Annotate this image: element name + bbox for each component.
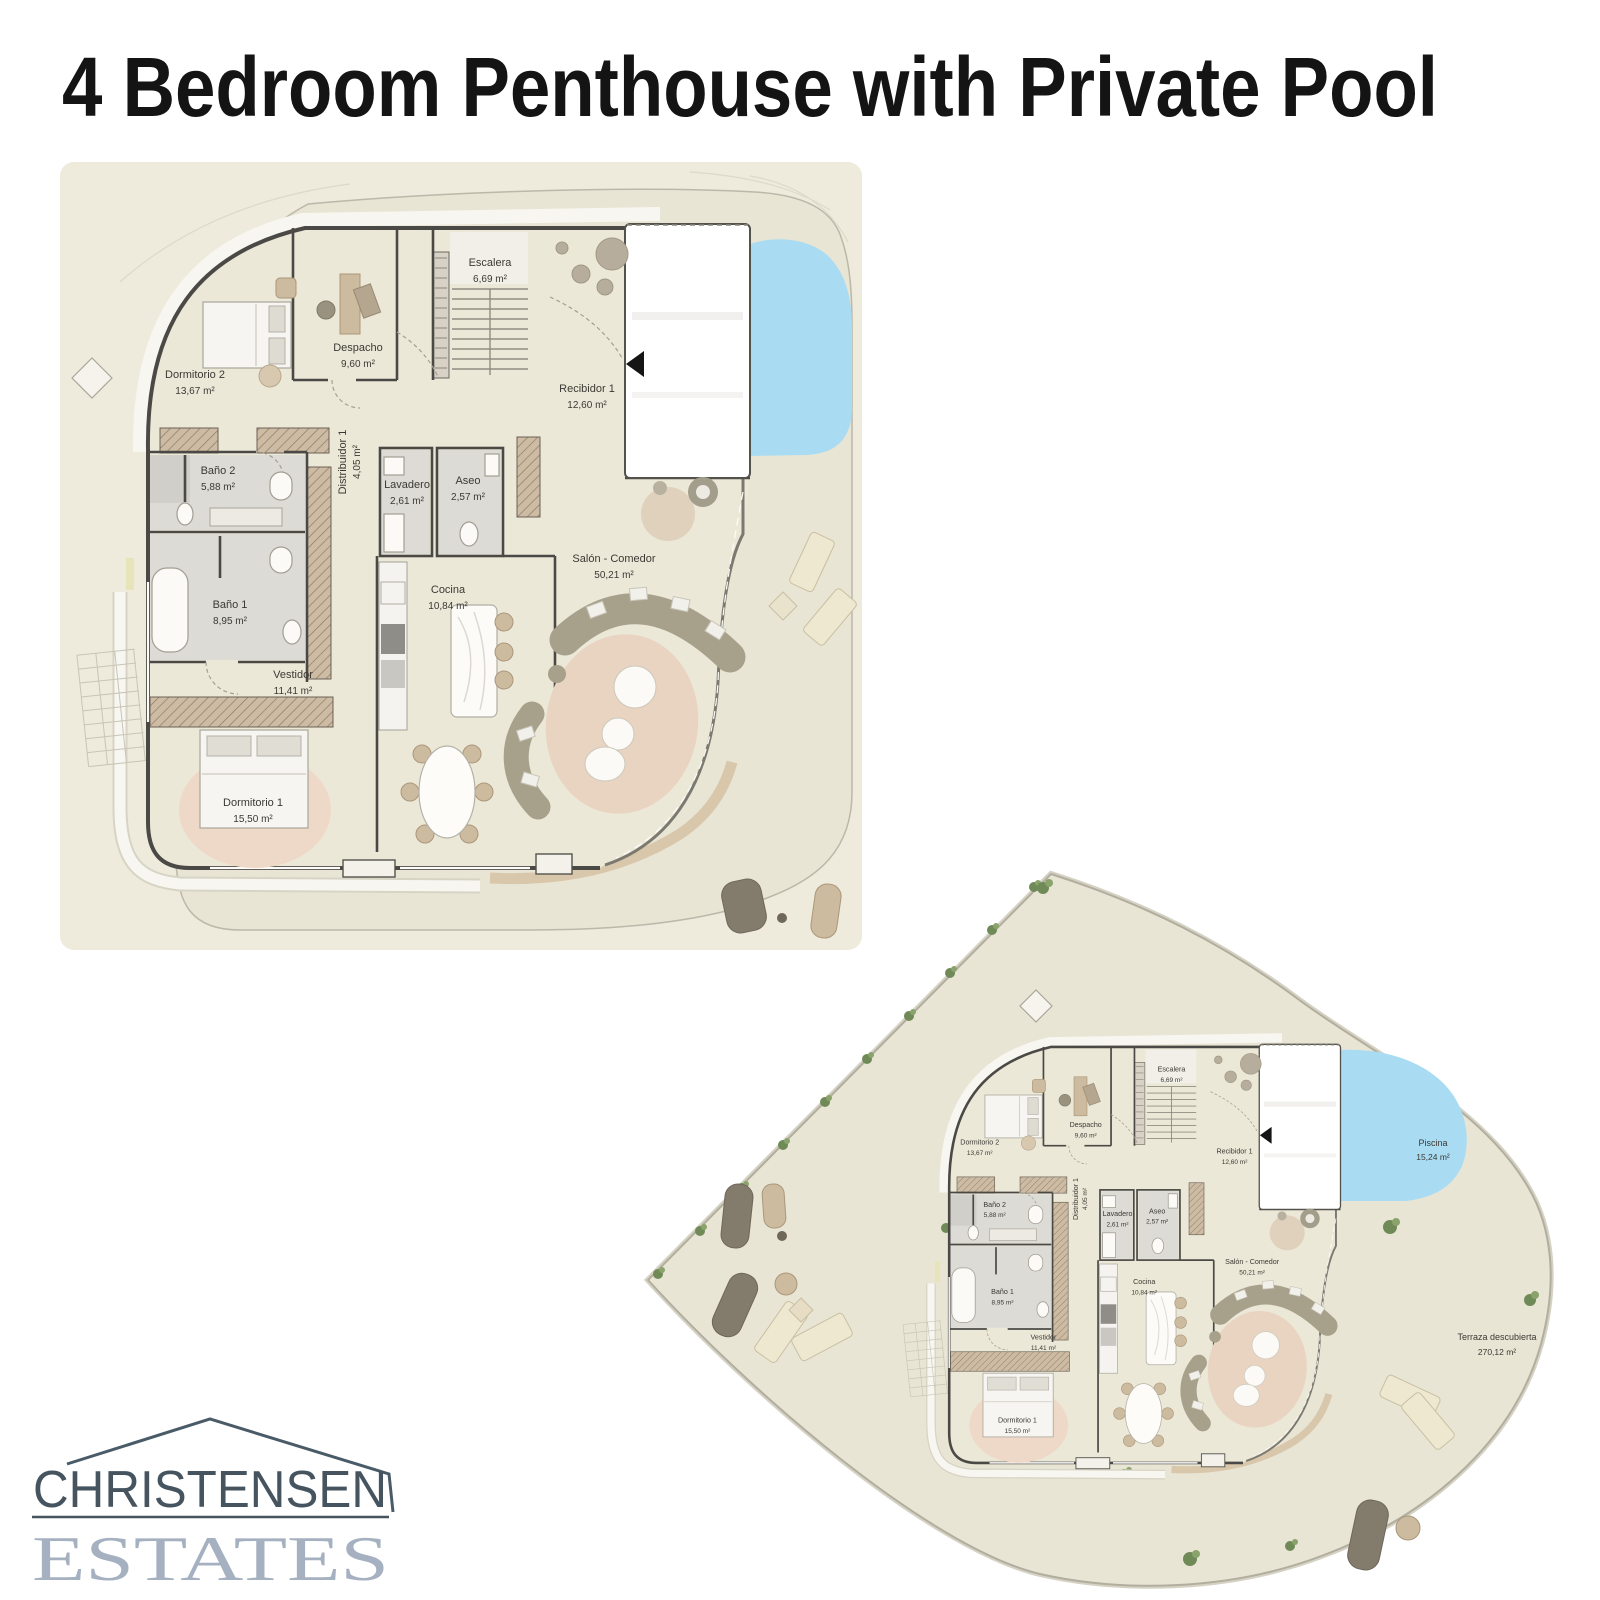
label-recibidor-name: Recibidor 1 [559,383,615,395]
label-salon-area: 50,21 m² [594,570,634,581]
label-despacho-name: Despacho [333,342,383,354]
label-bano1-area: 8,95 m² [213,616,248,627]
label-dormitorio2-name: Dormitorio 2 [165,369,225,381]
plan-lower: Piscina 15,24 m² Terraza descubierta 270… [648,874,1551,1586]
pool-lower [1340,1050,1467,1201]
label-lavadero-area: 2,61 m² [390,496,425,507]
label-lavadero-name: Lavadero [384,479,430,491]
label-escalera-name: Escalera [469,257,513,269]
void-shade-2 [632,392,743,398]
plan-upper: Dormitorio 2 13,67 m² Despacho 9,60 m² E… [60,162,862,950]
label-recibidor-area: 12,60 m² [567,400,607,411]
label-aseo-name: Aseo [455,475,480,487]
apartment-unit-lower [903,1038,1340,1475]
label-despacho-area: 9,60 m² [341,359,376,370]
label-vestidor-name: Vestidor [273,669,313,681]
label-piscina-area: 15,24 m² [1416,1152,1450,1162]
label-bano1-name: Baño 1 [213,599,248,611]
void-recibidor [625,224,750,478]
logo: CHRISTENSEN ESTATES [32,1419,393,1594]
label-dormitorio1-area: 15,50 m² [233,814,273,825]
door-threshold [343,860,395,877]
label-distribuidor-name: Distribuidor 1 [337,430,349,495]
floorplan-flyer: 4 Bedroom Penthouse with Private Pool [0,0,1600,1600]
label-bano2-name: Baño 2 [201,465,236,477]
label-cocina-name: Cocina [431,584,466,596]
logo-wordmark: CHRISTENSEN [33,1461,387,1519]
label-escalera-area: 6,69 m² [473,274,508,285]
label-aseo-area: 2,57 m² [451,492,486,503]
door-threshold-2 [536,854,572,874]
label-dormitorio1-name: Dormitorio 1 [223,797,283,809]
logo-tagline: ESTATES [32,1524,389,1594]
label-vestidor-area: 11,41 m² [274,686,313,697]
flyer-canvas: 4 Bedroom Penthouse with Private Pool [0,0,1600,1600]
label-bano2-area: 5,88 m² [201,482,236,493]
page-title: 4 Bedroom Penthouse with Private Pool [62,40,1438,134]
pool-upper [750,239,852,456]
label-terraza-area: 270,12 m² [1478,1347,1516,1357]
void-shade-1 [632,312,743,320]
label-piscina-name: Piscina [1418,1138,1447,1148]
label-terraza-name: Terraza descubierta [1457,1332,1536,1342]
label-cocina-area: 10,84 m² [428,601,468,612]
label-distribuidor-area: 4,05 m² [352,444,363,479]
apartment-unit: Dormitorio 2 13,67 m² Despacho 9,60 m² E… [77,214,750,886]
wall-accent [126,558,134,590]
label-dormitorio2-area: 13,67 m² [175,386,215,397]
label-salon-name: Salón - Comedor [572,553,655,565]
